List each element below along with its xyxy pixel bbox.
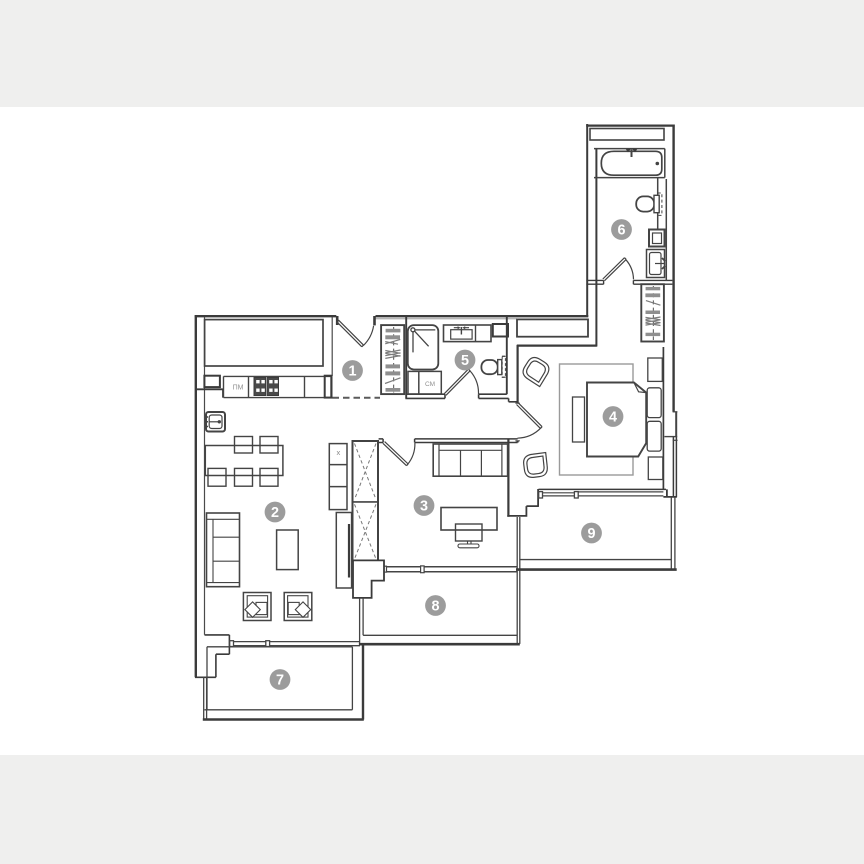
svg-text:2: 2 [271, 505, 279, 521]
svg-text:4: 4 [609, 409, 617, 425]
svg-text:8: 8 [431, 598, 439, 614]
svg-text:x: x [337, 448, 341, 457]
svg-text:9: 9 [587, 526, 595, 542]
svg-text:СМ: СМ [425, 381, 435, 388]
svg-text:5: 5 [461, 353, 469, 369]
svg-text:ПМ: ПМ [233, 385, 244, 392]
svg-text:6: 6 [617, 222, 625, 238]
svg-text:7: 7 [276, 672, 284, 688]
svg-text:1: 1 [348, 363, 356, 379]
svg-text:3: 3 [420, 499, 428, 515]
